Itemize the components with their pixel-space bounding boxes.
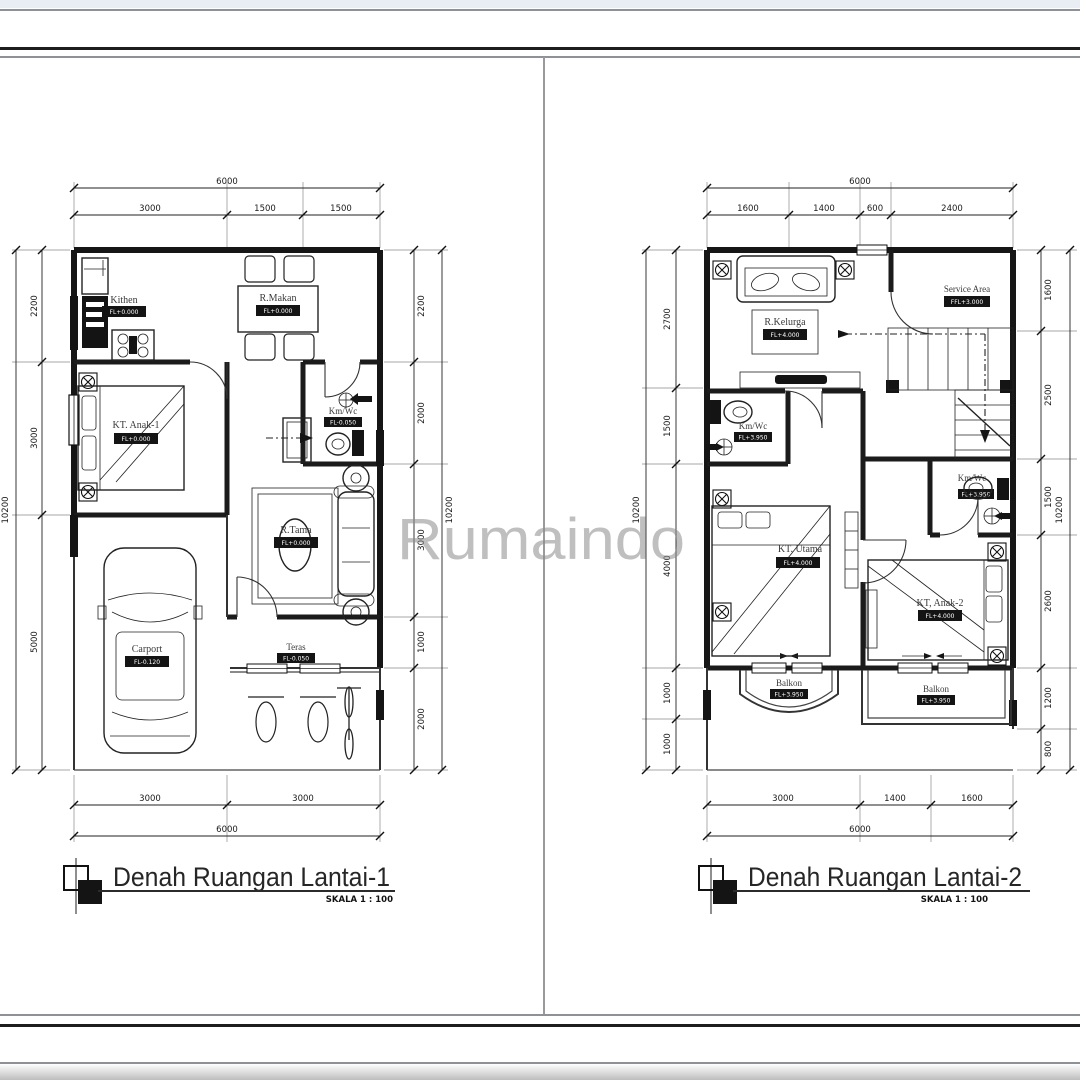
plan1-bathroom: Km/Wc FL-0.050: [266, 393, 372, 462]
svg-text:3000: 3000: [292, 794, 314, 804]
svg-text:FL+0.000: FL+0.000: [122, 436, 151, 443]
svg-text:1500: 1500: [254, 204, 276, 214]
svg-text:1600: 1600: [961, 794, 983, 804]
svg-text:Balkon: Balkon: [923, 684, 949, 694]
svg-text:Service Area: Service Area: [944, 284, 990, 294]
svg-text:FL+3.950: FL+3.950: [775, 692, 804, 699]
svg-text:6000: 6000: [216, 825, 238, 835]
plan1-motorcycle-1: [246, 673, 287, 764]
svg-text:5000: 5000: [30, 631, 40, 653]
svg-text:1500: 1500: [1044, 486, 1054, 508]
plan1-kitchen-label: Kithen FL+0.000: [102, 295, 146, 317]
svg-text:KT, Anak-2: KT, Anak-2: [916, 598, 963, 609]
plan2-scale: SKALA 1 : 100: [921, 895, 988, 905]
plan2-master-bedroom: KT. Utama FL+4.000: [712, 490, 877, 656]
svg-text:2200: 2200: [417, 295, 427, 317]
plan1-bicycle: [337, 687, 361, 759]
plan2-title-block: Denah Ruangan Lantai-2 SKALA 1 : 100: [699, 858, 1030, 914]
svg-text:FL+4.000: FL+4.000: [784, 560, 813, 567]
plan2-balcony-left: Balkon FL+3.950: [740, 670, 838, 712]
svg-text:1400: 1400: [884, 794, 906, 804]
svg-text:2500: 2500: [1044, 384, 1054, 406]
svg-text:R.Makan: R.Makan: [260, 293, 297, 304]
svg-text:3000: 3000: [139, 794, 161, 804]
svg-text:1600: 1600: [1044, 279, 1054, 301]
plan2-doors: [785, 292, 978, 583]
svg-text:R.Tama: R.Tama: [280, 525, 312, 536]
drawing-sheet: 6000 3000 1500 1500 10200 2200 3000 5000…: [0, 0, 1080, 1080]
svg-text:Km/Wc: Km/Wc: [329, 406, 358, 416]
plan2-family-room: R.Kelurga FL+4.000: [713, 256, 860, 388]
svg-text:1500: 1500: [330, 204, 352, 214]
svg-text:KT. Utama: KT. Utama: [778, 544, 823, 555]
svg-text:Kithen: Kithen: [110, 295, 137, 306]
svg-text:FL+4.000: FL+4.000: [771, 332, 800, 339]
svg-text:FFL+3.000: FFL+3.000: [951, 299, 984, 306]
svg-text:2200: 2200: [30, 295, 40, 317]
svg-text:1000: 1000: [417, 631, 427, 653]
svg-text:FL+0.000: FL+0.000: [282, 540, 311, 547]
plan2-bathroom-left: Km/Wc FL+3.950: [706, 400, 772, 455]
svg-text:1400: 1400: [813, 204, 835, 214]
plan1-title: Denah Ruangan Lantai-1: [113, 862, 390, 892]
plan1-motorcycle-2: [298, 673, 339, 764]
svg-text:KT. Anak-1: KT. Anak-1: [112, 420, 159, 431]
svg-text:3000: 3000: [772, 794, 794, 804]
plan1-scale: SKALA 1 : 100: [326, 895, 393, 905]
svg-text:6000: 6000: [849, 177, 871, 187]
svg-text:FL+0.000: FL+0.000: [264, 308, 293, 315]
plan2-balcony-right: Balkon FL+3.950: [862, 670, 1011, 724]
plan2-service-area-label: Service Area FFL+3.000: [944, 284, 990, 307]
svg-text:6000: 6000: [216, 177, 238, 187]
svg-text:FL-0.050: FL-0.050: [283, 656, 309, 663]
svg-text:1000: 1000: [663, 733, 673, 755]
plan1-living: R.Tama FL+0.000: [252, 465, 374, 625]
svg-text:1600: 1600: [737, 204, 759, 214]
svg-text:FL+4.000: FL+4.000: [926, 613, 955, 620]
svg-text:6000: 6000: [849, 825, 871, 835]
svg-text:2400: 2400: [941, 204, 963, 214]
floor-plan-1: 6000 3000 1500 1500 10200 2200 3000 5000…: [1, 177, 455, 914]
floor-plan-drawing: 6000 3000 1500 1500 10200 2200 3000 5000…: [0, 0, 1080, 1080]
svg-text:1200: 1200: [1044, 687, 1054, 709]
svg-text:2000: 2000: [417, 402, 427, 424]
floor-plan-2: 6000 1600 1400 600 2400 10200 2700 1500 …: [632, 177, 1077, 914]
svg-text:FL+3.950: FL+3.950: [739, 435, 768, 442]
svg-text:2700: 2700: [663, 308, 673, 330]
svg-text:Carport: Carport: [132, 644, 163, 655]
plan2-title: Denah Ruangan Lantai-2: [748, 862, 1022, 892]
plan2-walls: [703, 245, 1017, 770]
svg-text:Km/Wc: Km/Wc: [739, 421, 768, 431]
plan1-dining: R.Makan FL+0.000: [238, 256, 318, 360]
plan1-title-block: Denah Ruangan Lantai-1 SKALA 1 : 100: [64, 858, 395, 914]
plan1-carport: Carport FL-0.120: [98, 548, 202, 753]
svg-text:FL-0.050: FL-0.050: [330, 420, 356, 427]
svg-text:2600: 2600: [1044, 590, 1054, 612]
svg-text:3000: 3000: [139, 204, 161, 214]
svg-text:10200: 10200: [1, 496, 11, 523]
svg-text:FL+3.950: FL+3.950: [922, 698, 951, 705]
plan1-bedroom1: KT. Anak-1 FL+0.000: [78, 373, 184, 501]
svg-text:600: 600: [867, 204, 883, 214]
svg-text:R.Kelurga: R.Kelurga: [764, 317, 806, 328]
svg-text:10200: 10200: [1055, 496, 1065, 523]
svg-text:3000: 3000: [30, 427, 40, 449]
plan1-terrace-label: Teras FL-0.050: [277, 642, 315, 663]
svg-text:2000: 2000: [417, 708, 427, 730]
svg-text:Balkon: Balkon: [776, 678, 802, 688]
svg-text:Teras: Teras: [286, 642, 306, 652]
plan2-bathroom-right: Km/Wc FL+3.950: [958, 473, 1011, 524]
svg-text:FL+0.000: FL+0.000: [110, 309, 139, 316]
svg-text:1500: 1500: [663, 415, 673, 437]
svg-text:1000: 1000: [663, 682, 673, 704]
svg-text:FL-0.120: FL-0.120: [134, 659, 160, 666]
svg-text:800: 800: [1044, 741, 1054, 757]
watermark: Rumaindo: [397, 507, 685, 572]
plan2-bedroom2: KT, Anak-2 FL+4.000: [868, 543, 1008, 665]
